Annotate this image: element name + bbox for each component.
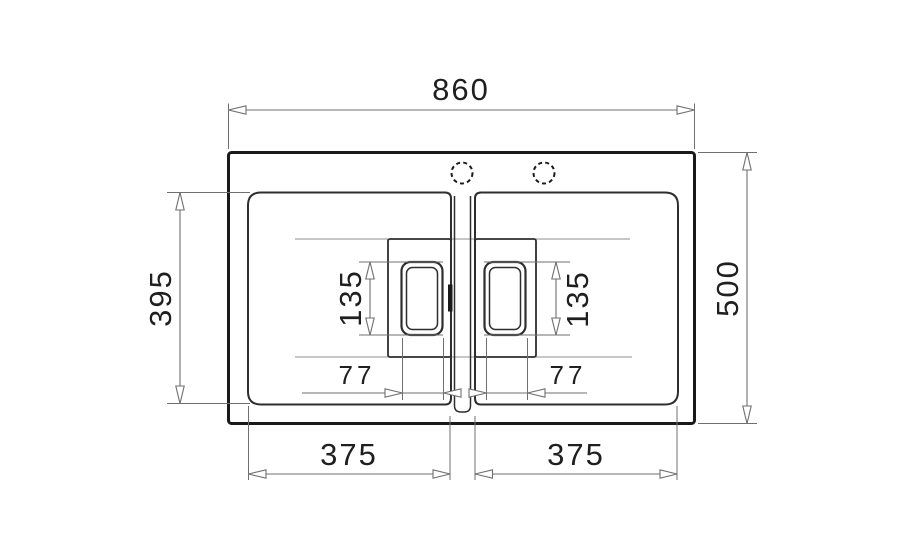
- dim-375L-label: 375: [320, 437, 378, 472]
- dim-135L-label: 135: [333, 269, 368, 327]
- dim-375R-label: 375: [547, 437, 605, 472]
- dim-860-label: 860: [432, 72, 490, 107]
- sink-dimension-drawing: 860 500 395 135 135 77: [0, 0, 900, 554]
- dim-395-label: 395: [143, 269, 178, 327]
- overflow-marker: [448, 285, 453, 312]
- dim-135R-label: 135: [560, 270, 595, 328]
- dim-77R-label: 77: [550, 360, 587, 390]
- dim-500-label: 500: [710, 259, 745, 317]
- technical-drawing: 860 500 395 135 135 77: [0, 0, 900, 554]
- dim-77L-label: 77: [339, 360, 376, 390]
